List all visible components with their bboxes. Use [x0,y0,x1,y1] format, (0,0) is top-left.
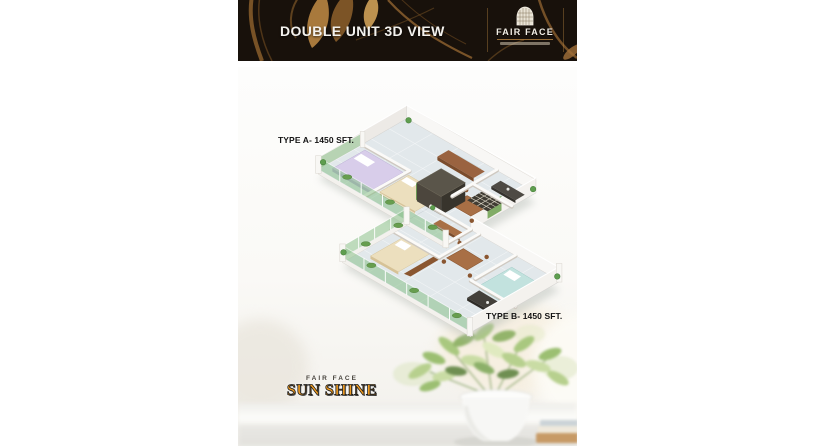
photo-area: TYPE A- 1450 SFT. TYPE B- 1450 SFT. FAIR… [238,67,577,446]
sunshine-brand-top: FAIR FACE [268,375,396,382]
logo-separator-right [563,8,564,52]
brochure-page: DOUBLE UNIT 3D VIEW FAIR FACE [0,0,817,446]
header-brand-logo: FAIR FACE [491,6,559,45]
page-title: DOUBLE UNIT 3D VIEW [280,23,445,39]
brand-gold-rule [497,39,553,40]
header-band: DOUBLE UNIT 3D VIEW FAIR FACE [238,0,577,61]
brand-name: FAIR FACE [491,27,559,37]
sunshine-brand-main: SUN SHINE [268,382,396,400]
type-a-label: TYPE A- 1450 SFT. [278,135,354,145]
plant-pot [462,398,530,441]
logo-separator-left [487,8,488,52]
building-grid-icon [510,6,540,26]
brand-tagline-line [500,42,550,45]
type-b-label: TYPE B- 1450 SFT. [486,311,562,321]
books-stack [536,420,577,443]
sunshine-project-logo: FAIR FACE SUN SHINE [268,375,396,400]
